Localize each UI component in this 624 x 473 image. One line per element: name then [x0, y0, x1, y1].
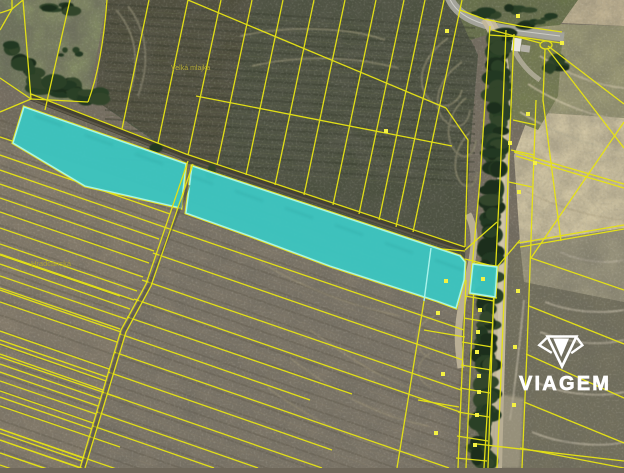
- svg-text:VIAGEM: VIAGEM: [519, 373, 611, 395]
- svg-text:Velká mlajka: Velká mlajka: [171, 65, 210, 72]
- svg-text:Hradčanská: Hradčanská: [31, 259, 72, 268]
